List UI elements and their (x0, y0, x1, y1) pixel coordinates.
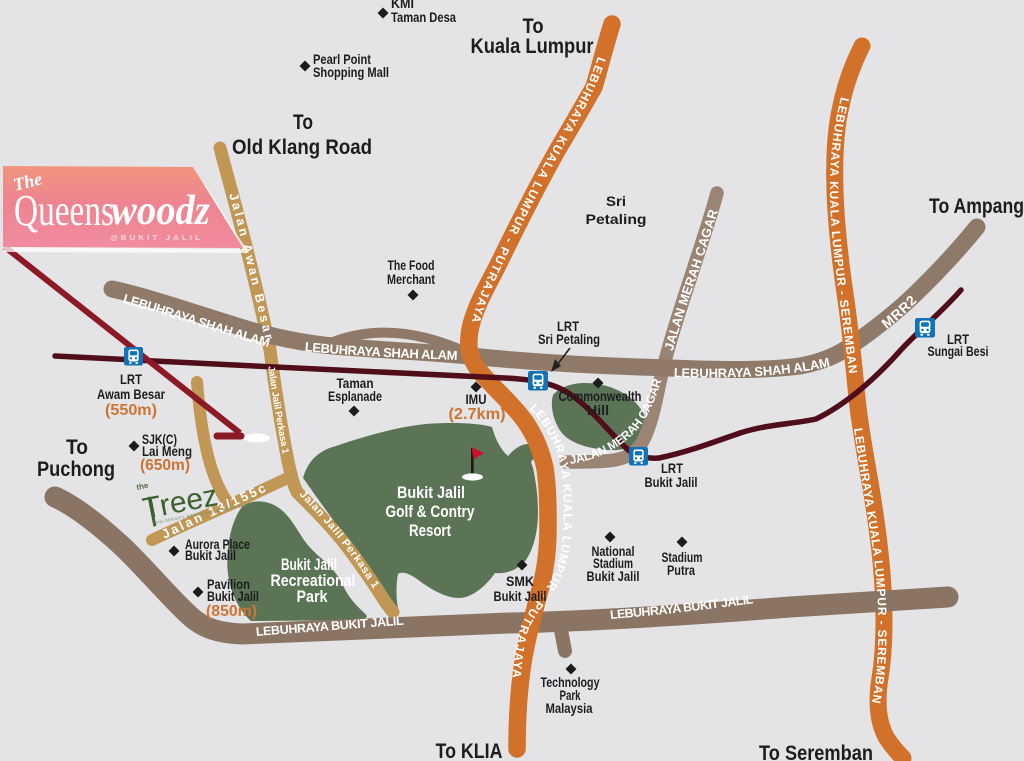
svg-text:Bukit Jalil: Bukit Jalil (185, 547, 236, 563)
svg-text:Sri Petaling: Sri Petaling (538, 331, 600, 347)
svg-text:Queens: Queens (14, 186, 114, 235)
svg-text:Awam Besar: Awam Besar (97, 386, 165, 402)
svg-text:Hill: Hill (587, 402, 609, 418)
svg-text:Bukit Jalil: Bukit Jalil (207, 588, 259, 604)
svg-text:Bukit Jalil: Bukit Jalil (397, 484, 465, 502)
svg-text:(550m): (550m) (105, 402, 157, 419)
svg-text:Golf & Contry: Golf & Contry (386, 503, 476, 521)
svg-text:@BUKIT JALIL: @BUKIT JALIL (110, 233, 203, 242)
svg-text:Taman Desa: Taman Desa (391, 9, 456, 25)
svg-text:Kuala Lumpur: Kuala Lumpur (471, 34, 595, 58)
svg-text:Malaysia: Malaysia (546, 700, 593, 716)
svg-text:(850m): (850m) (206, 603, 257, 620)
svg-text:woodz: woodz (111, 188, 211, 234)
svg-text:IMU: IMU (466, 391, 487, 407)
svg-text:Merchant: Merchant (387, 271, 435, 287)
svg-text:Esplanade: Esplanade (328, 388, 382, 404)
svg-text:SMK: SMK (506, 573, 534, 589)
svg-text:Old Klang Road: Old Klang Road (232, 135, 372, 159)
svg-text:To Seremban: To Seremban (759, 741, 873, 761)
svg-text:Puchong: Puchong (37, 457, 115, 481)
svg-text:Bukit Jalil: Bukit Jalil (645, 474, 698, 490)
svg-text:Park: Park (297, 588, 329, 606)
svg-text:To: To (293, 110, 313, 134)
svg-text:Petaling: Petaling (586, 211, 647, 227)
svg-text:Sri: Sri (606, 193, 626, 209)
svg-text:(2.7km): (2.7km) (449, 406, 506, 423)
svg-text:To: To (66, 435, 88, 459)
svg-text:(650m): (650m) (140, 457, 190, 474)
svg-text:To KLIA: To KLIA (436, 739, 503, 761)
svg-text:Putra: Putra (667, 563, 695, 578)
svg-text:LRT: LRT (120, 371, 142, 387)
svg-text:Sungai Besi: Sungai Besi (928, 343, 989, 359)
svg-text:Bukit Jalil: Bukit Jalil (587, 569, 640, 584)
svg-text:Bukit Jalil: Bukit Jalil (494, 588, 547, 604)
svg-text:Resort: Resort (409, 522, 451, 540)
svg-text:To Ampang: To Ampang (929, 194, 1024, 218)
svg-text:Shopping Mall: Shopping Mall (313, 64, 389, 80)
